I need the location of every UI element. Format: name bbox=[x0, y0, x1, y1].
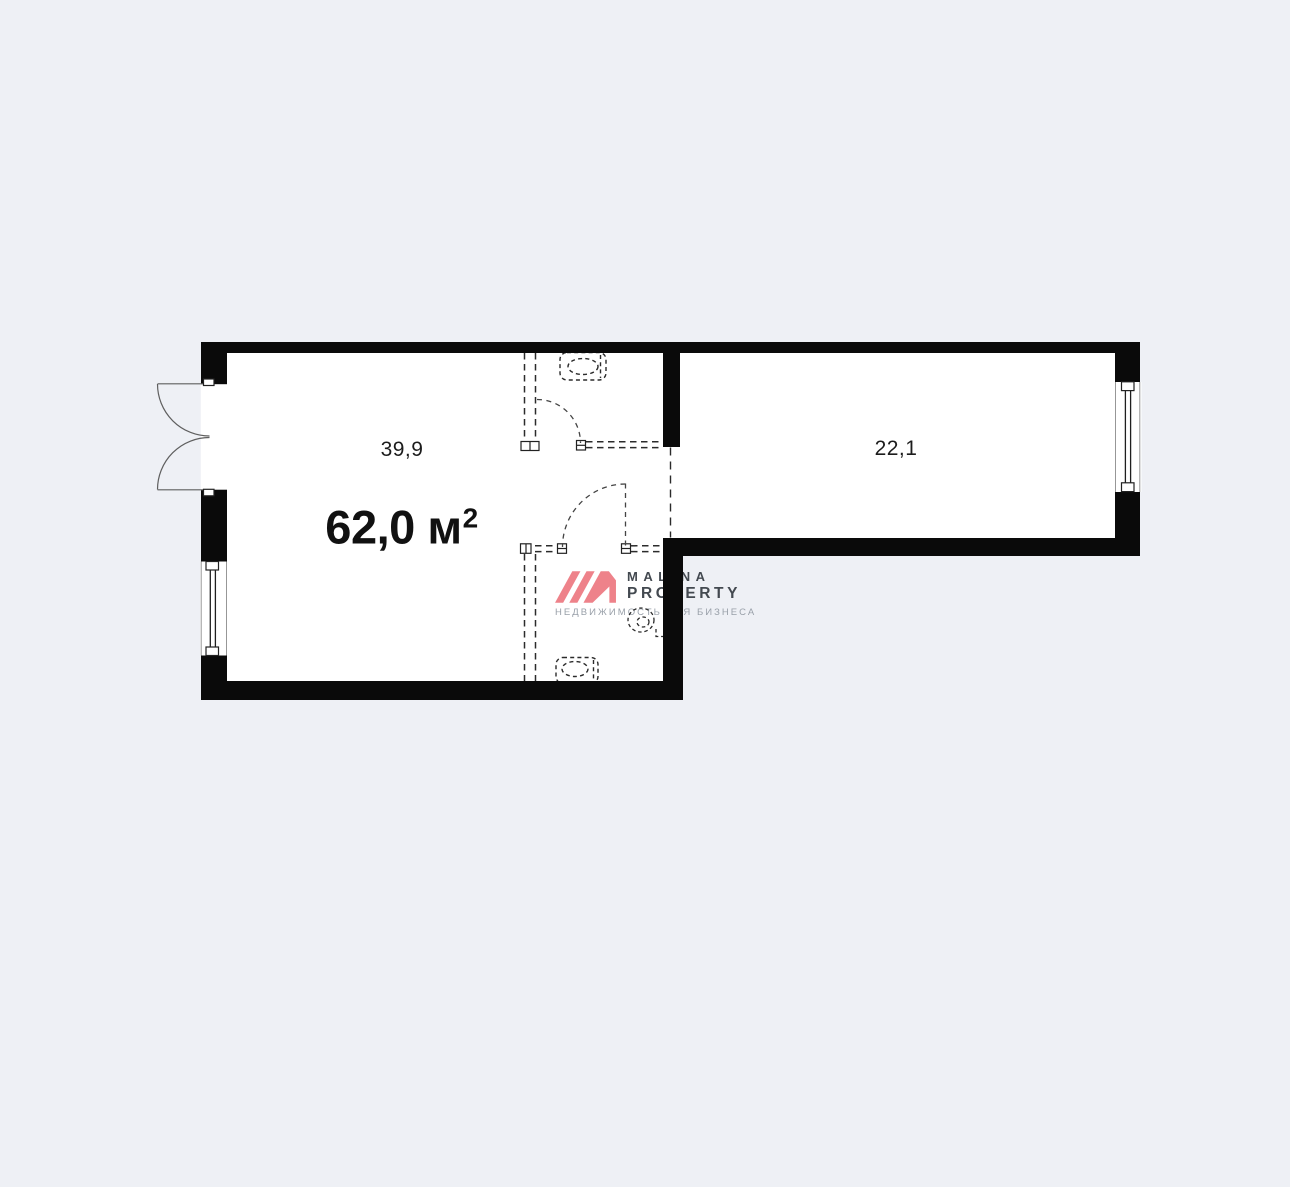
floor-plan: MALINA PROPERTY НЕДВИЖИМОСТЬ ДЛЯ БИЗНЕСА bbox=[0, 0, 1290, 1187]
window-right bbox=[1114, 382, 1142, 492]
total-area-value: 62,0 м bbox=[325, 501, 461, 554]
entrance-double-door bbox=[158, 379, 228, 496]
total-area-label: 62,0 м2 bbox=[325, 500, 476, 555]
total-area-superscript: 2 bbox=[463, 503, 478, 534]
room-area-label-left: 39,9 bbox=[381, 438, 424, 462]
window-left bbox=[200, 562, 228, 656]
room-area-label-right: 22,1 bbox=[875, 437, 918, 461]
plan-openings bbox=[0, 0, 1290, 1187]
